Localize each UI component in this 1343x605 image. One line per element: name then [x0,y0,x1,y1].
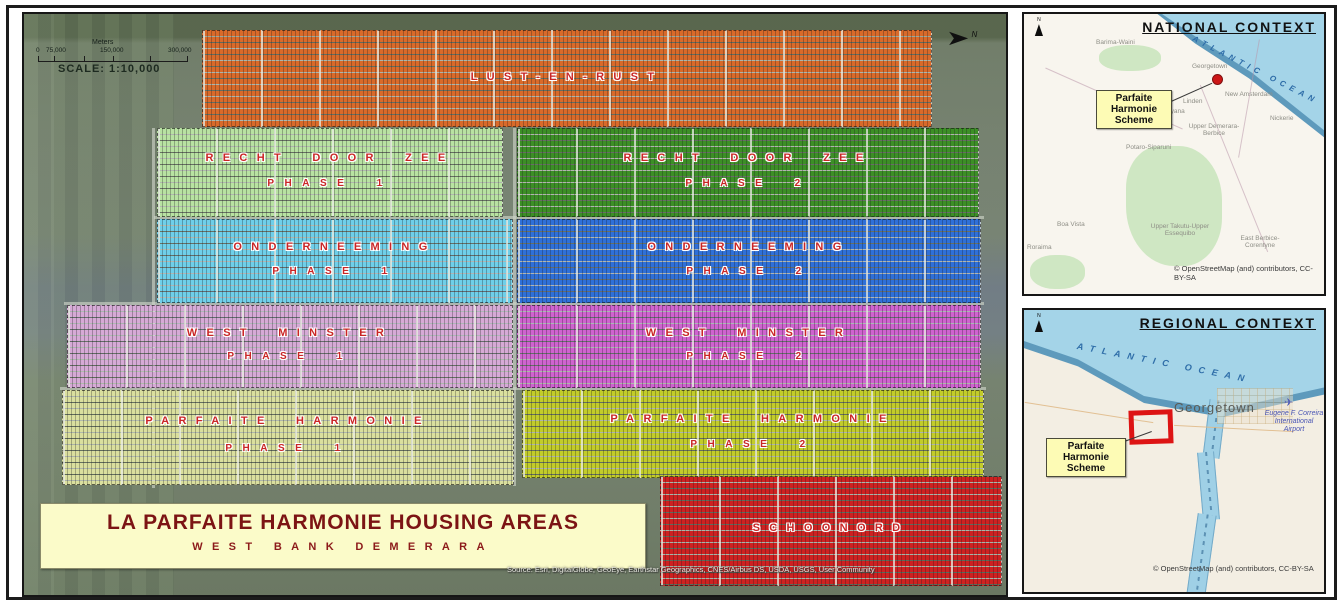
region-onderneeming-phase-2: ONDERNEEMING PHASE 2 [517,219,981,303]
region-west-minster-phase-1: WEST MINSTER PHASE 1 [67,305,513,388]
region-phase: PHASE 1 [63,443,513,454]
region-phase: PHASE 1 [158,178,502,189]
scale-tick-label: 0 [36,47,40,54]
scale-tick-label: 75,000 [46,47,66,54]
forest-patch [1099,45,1161,71]
region-label: PARFAITE HARMONIE [63,415,513,427]
map-label-potaro: Potaro-Siparuni [1126,144,1171,151]
region-label: ONDERNEEMING [158,241,512,253]
forest-patch [1030,255,1085,289]
scale-bar-line [38,56,188,62]
map-sheet: LUST-EN-RUST RECHT DOOR ZEE PHASE 1 RECH… [0,0,1343,605]
map-label-roraima: Roraima [1027,244,1052,251]
north-arrow-glyph: ▲ [1032,20,1046,39]
map-label-nickerie: Nickerie [1270,115,1293,122]
map-label-east-berbice: East Berbice-Corentyne [1231,235,1289,249]
region-label: WEST MINSTER [518,327,980,339]
north-arrow-icon: ➤N [946,24,975,52]
region-label: WEST MINSTER [68,327,512,339]
main-map: LUST-EN-RUST RECHT DOOR ZEE PHASE 1 RECH… [22,12,1008,597]
north-letter: N [971,30,977,39]
map-subtitle: WEST BANK DEMERARA [41,541,645,553]
airplane-icon: ✈ [1284,396,1293,409]
region-phase: PHASE 2 [523,439,983,450]
north-arrow-glyph: ➤ [946,28,969,49]
region-phase: PHASE 2 [518,266,980,277]
inset-title: NATIONAL CONTEXT [1142,19,1316,35]
region-phase: PHASE 2 [518,351,980,362]
scale-tick-label: 300,000 [168,47,192,54]
region-phase: PHASE 1 [68,351,512,362]
map-label-new-amsterdam: New Amsterdam [1225,91,1273,98]
map-label-upper-demerara: Upper Demerara-Berbice [1183,123,1245,137]
regional-context-inset: ATLANTIC OCEAN REGIONAL CONTEXT N ▲ Geor… [1022,308,1326,594]
region-onderneeming-phase-1: ONDERNEEMING PHASE 1 [157,219,513,303]
map-label-boa-vista: Boa Vista [1057,221,1085,228]
region-phase: PHASE 1 [158,266,512,277]
region-label: LUST-EN-RUST [203,71,931,83]
osm-attribution: © OpenStreetMap (and) contributors, CC-B… [1174,264,1319,282]
osm-attribution: © OpenStreetMap (and) contributors, CC-B… [1153,564,1321,573]
map-label-georgetown: Georgetown [1192,63,1227,70]
map-label-linden: Linden [1183,98,1203,105]
scheme-callout: Parfaite Harmonie Scheme [1096,90,1172,129]
map-label-airport: Eugene F. Correira International Airport [1264,410,1324,434]
region-label: RECHT DOOR ZEE [518,152,978,164]
scale-units-label: Meters [92,39,113,46]
north-arrow-glyph: ▲ [1032,316,1046,335]
scheme-location-dot [1212,74,1223,85]
basemap-attribution: Source: Esri, DigitalGlobe, GeoEye, Eart… [507,565,947,574]
map-title: LA PARFAITE HARMONIE HOUSING AREAS [41,511,645,535]
inset-title: REGIONAL CONTEXT [1140,315,1316,331]
scale-tick-label: 150,000 [100,47,124,54]
region-label: PARFAITE HARMONIE [523,413,983,425]
scheme-location-outline [1128,409,1173,445]
scale-text: SCALE: 1:10,000 [58,63,160,75]
region-parfaite-harmonie-phase-2: PARFAITE HARMONIE PHASE 2 [522,390,984,478]
region-phase: PHASE 2 [518,178,978,189]
region-west-minster-phase-2: WEST MINSTER PHASE 2 [517,305,981,388]
region-label: SCHOONORD [661,522,1001,534]
north-arrow-icon: N ▲ [1032,314,1046,332]
forest-patch [1126,146,1222,266]
region-label: ONDERNEEMING [518,241,980,253]
region-recht-door-zee-phase-1: RECHT DOOR ZEE PHASE 1 [157,128,503,217]
map-label-georgetown: Georgetown [1174,400,1255,415]
map-title-box: LA PARFAITE HARMONIE HOUSING AREAS WEST … [40,503,646,569]
region-label: RECHT DOOR ZEE [158,152,502,164]
scheme-callout: Parfaite Harmonie Scheme [1046,438,1126,477]
region-recht-door-zee-phase-2: RECHT DOOR ZEE PHASE 2 [517,128,979,217]
region-lust-en-rust: LUST-EN-RUST [202,30,932,127]
map-label-barima-waini: Barima-Waini [1096,39,1135,46]
region-parfaite-harmonie-phase-1: PARFAITE HARMONIE PHASE 1 [62,390,514,485]
national-context-inset: ATLANTIC OCEAN NATIONAL CONTEXT N ▲ Bari… [1022,12,1326,296]
map-label-upper-takutu: Upper Takutu-Upper Essequibo [1147,223,1213,237]
north-arrow-icon: N ▲ [1032,18,1046,36]
